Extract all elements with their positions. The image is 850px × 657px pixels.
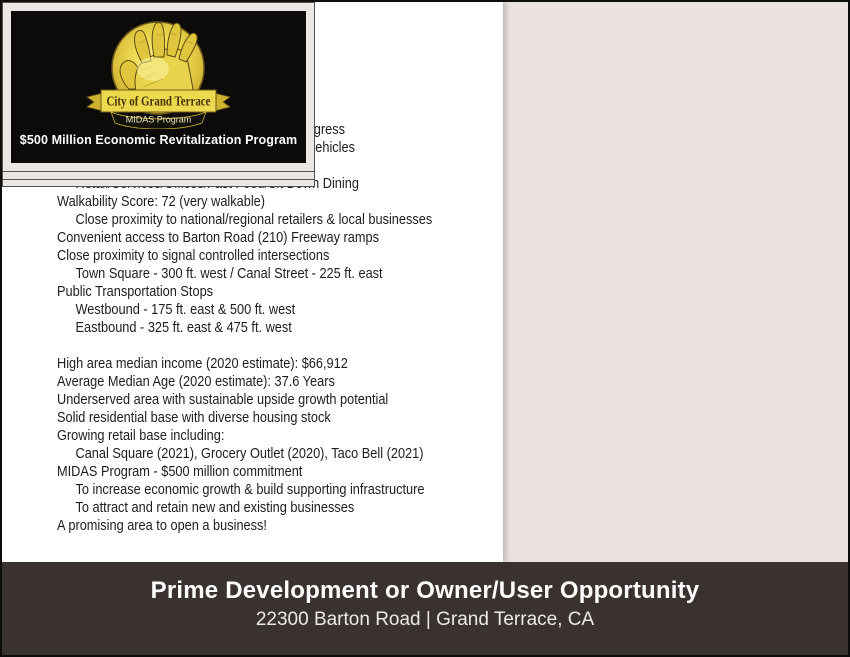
profile-line: A promising area to open a business! (57, 517, 449, 535)
profile-line: To attract and retain new and existing b… (57, 499, 449, 517)
profile-line: Convenient access to Barton Road (210) F… (57, 229, 449, 247)
footer-band: Prime Development or Owner/User Opportun… (2, 562, 848, 655)
photo-frame-midas: City of Grand Terrace MIDAS Program $500… (2, 2, 315, 172)
badge-subbanner-text: MIDAS Program (126, 115, 192, 125)
profile-line: Solid residential base with diverse hous… (57, 409, 449, 427)
profile-line: Town Square - 300 ft. west / Canal Stree… (57, 265, 449, 283)
profile-line: Canal Square (2021), Grocery Outlet (202… (57, 445, 449, 463)
profile-line: MIDAS Program - $500 million commitment (57, 463, 449, 481)
gold-glow (137, 57, 169, 81)
profile-line: Public Transportation Stops (57, 283, 449, 301)
flyer-page: Profile Prime development opportunityMaj… (0, 0, 850, 657)
profile-line: Westbound - 175 ft. east & 500 ft. west (57, 301, 449, 319)
badge-banner-text: City of Grand Terrace (107, 95, 211, 110)
profile-line (57, 337, 449, 355)
profile-line: Walkability Score: 72 (very walkable) (57, 193, 449, 211)
footer-title: Prime Development or Owner/User Opportun… (2, 577, 848, 605)
profile-line: Close proximity to national/regional ret… (57, 211, 449, 229)
footer-subtitle: 22300 Barton Road | Grand Terrace, CA (2, 609, 848, 631)
midas-badge: City of Grand Terrace MIDAS Program (11, 11, 306, 129)
profile-line: High area median income (2020 estimate):… (57, 355, 449, 373)
midas-badge-image: City of Grand Terrace MIDAS Program $500… (11, 11, 306, 163)
badge-ribbon: City of Grand Terrace MIDAS Program (87, 90, 230, 129)
badge-caption: $500 Million Economic Revitalization Pro… (20, 133, 297, 147)
profile-line: Eastbound - 325 ft. east & 475 ft. west (57, 319, 449, 337)
profile-line: To increase economic growth & build supp… (57, 481, 449, 499)
profile-line: Close proximity to signal controlled int… (57, 247, 449, 265)
profile-line: Underserved area with sustainable upside… (57, 391, 449, 409)
profile-line: Growing retail base including: (57, 427, 449, 445)
profile-line: Average Median Age (2020 estimate): 37.6… (57, 373, 449, 391)
